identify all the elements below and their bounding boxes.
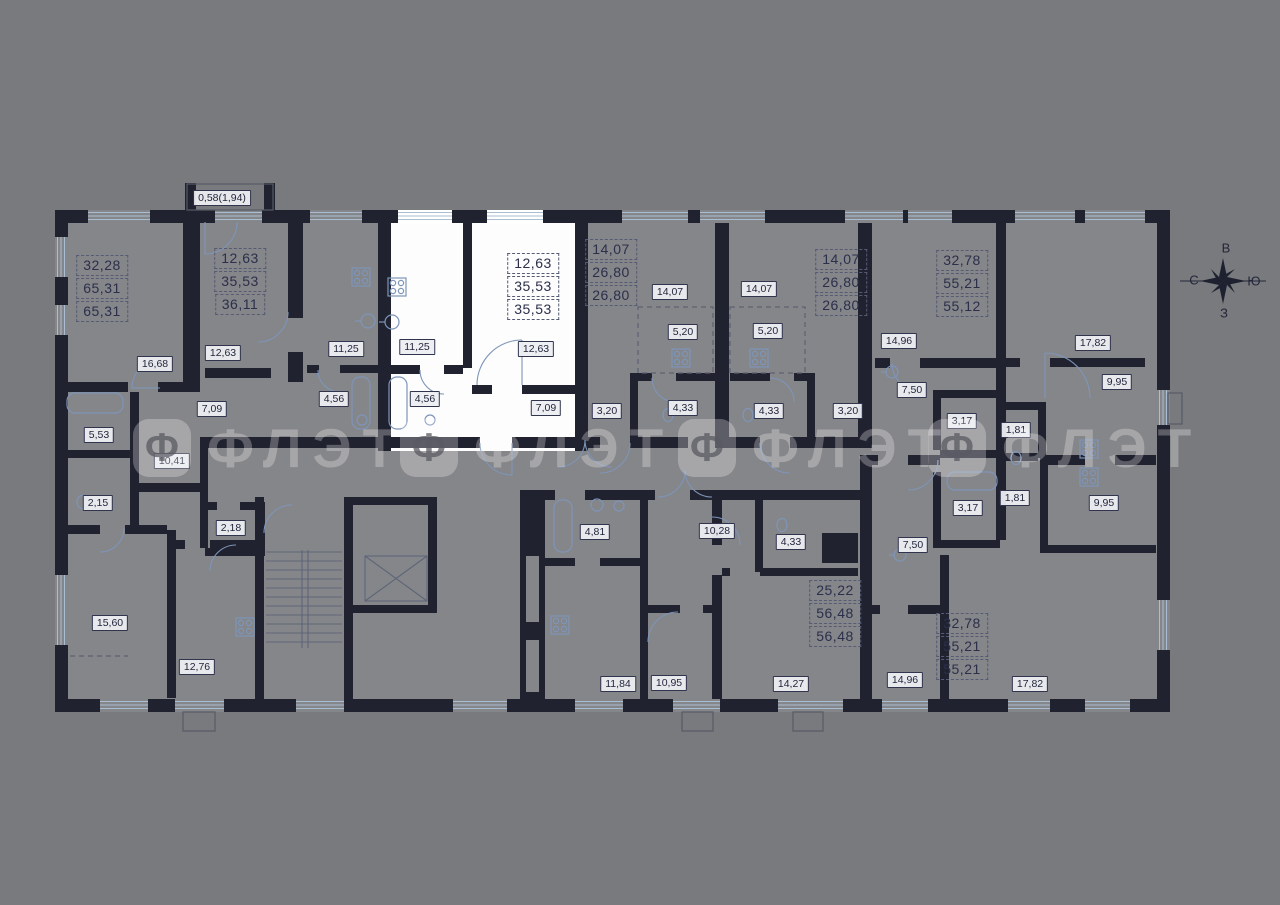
room-area-label: 4,56: [410, 391, 440, 407]
room-area-label: 2,15: [83, 495, 113, 511]
room-area-label: 14,96: [887, 672, 923, 688]
apartment-area-value: 36,11: [215, 294, 266, 315]
watermark-logo: ФФЛЭТ: [678, 419, 952, 477]
apartment-area-value: 32,78: [936, 613, 988, 634]
room-area-label: 14,07: [652, 284, 688, 300]
room-area-label: 4,81: [580, 524, 610, 540]
labels-layer: 0,58(1,94)16,6812,637,095,5311,254,5611,…: [0, 0, 1280, 905]
room-area-label: 7,09: [197, 401, 227, 417]
watermark-logo: ФФЛЭТ: [400, 419, 674, 477]
room-area-label: 7,50: [897, 382, 927, 398]
room-area-label: 7,09: [531, 400, 561, 416]
apartment-area-value: 25,22: [809, 580, 861, 601]
apartment-area-value: 12,63: [507, 253, 559, 274]
room-area-label: 14,27: [773, 676, 809, 692]
apartment-area-value: 65,31: [76, 278, 128, 299]
room-area-label: 11,84: [600, 676, 636, 692]
room-area-label: 5,20: [668, 324, 698, 340]
watermark-icon: Ф: [400, 419, 458, 477]
apartment-area-value: 35,53: [507, 299, 559, 320]
room-area-label: 2,18: [216, 520, 246, 536]
room-area-label: 0,58(1,94): [193, 190, 251, 206]
room-area-label: 3,20: [592, 403, 622, 419]
apartment-area-value: 55,21: [936, 659, 988, 680]
apartment-area-value: 56,48: [809, 626, 861, 647]
apartment-area-value: 32,78: [936, 250, 988, 271]
apartment-area-value: 14,07: [585, 239, 637, 260]
room-area-label: 15,60: [92, 615, 128, 631]
compass-rose: В С Ю З: [1178, 234, 1268, 329]
room-area-label: 11,25: [399, 339, 435, 355]
room-area-label: 3,20: [833, 403, 863, 419]
apartment-area-value: 12,63: [214, 248, 266, 269]
apartment-area-value: 55,12: [936, 296, 988, 317]
apartment-area-value: 35,53: [507, 276, 559, 297]
room-area-label: 1,81: [1001, 422, 1031, 438]
apartment-summary: 14,0726,8026,80: [815, 249, 867, 316]
room-area-label: 10,41: [154, 453, 190, 469]
compass-north-label: С: [1189, 273, 1198, 288]
room-area-label: 10,28: [699, 523, 735, 539]
room-area-label: 14,96: [881, 333, 917, 349]
room-area-label: 1,81: [1000, 490, 1030, 506]
apartment-summary: 32,7855,2155,21: [936, 613, 988, 680]
room-area-label: 10,95: [651, 675, 687, 691]
room-area-label: 11,25: [328, 341, 364, 357]
room-area-label: 9,95: [1102, 374, 1132, 390]
apartment-area-value: 26,80: [585, 285, 637, 306]
apartment-area-value: 65,31: [76, 301, 128, 322]
room-area-label: 12,76: [179, 659, 215, 675]
apartment-area-value: 26,80: [815, 295, 867, 316]
room-area-label: 5,20: [753, 323, 783, 339]
compass-south-label: Ю: [1247, 274, 1260, 289]
apartment-area-value: 14,07: [815, 249, 867, 270]
room-area-label: 12,63: [518, 341, 554, 357]
room-area-label: 4,33: [668, 400, 698, 416]
watermark-text: ФЛЭТ: [752, 419, 952, 477]
room-area-label: 4,56: [319, 391, 349, 407]
watermark-icon: Ф: [678, 419, 736, 477]
watermark-text: ФЛЭТ: [1002, 419, 1202, 477]
room-area-label: 3,17: [953, 500, 983, 516]
apartment-summary: 25,2256,4856,48: [809, 580, 861, 647]
room-area-label: 12,63: [205, 345, 241, 361]
watermark-text: ФЛЭТ: [207, 419, 407, 477]
apartment-summary: 32,7855,2155,12: [936, 250, 988, 317]
apartment-area-value: 55,21: [936, 273, 988, 294]
room-area-label: 3,17: [947, 413, 977, 429]
apartment-summary: 12,6335,5336,11: [214, 248, 266, 315]
room-area-label: 5,53: [84, 427, 114, 443]
room-area-label: 4,33: [754, 403, 784, 419]
room-area-label: 17,82: [1075, 335, 1111, 351]
apartment-summary: 32,2865,3165,31: [76, 255, 128, 322]
apartment-summary-highlighted: 12,6335,5335,53: [507, 253, 559, 320]
apartment-summary: 14,0726,8026,80: [585, 239, 637, 306]
room-area-label: 14,07: [741, 281, 777, 297]
room-area-label: 16,68: [137, 356, 173, 372]
room-area-label: 7,50: [898, 537, 928, 553]
room-area-label: 9,95: [1089, 495, 1119, 511]
apartment-area-value: 26,80: [585, 262, 637, 283]
apartment-area-value: 35,53: [214, 271, 266, 292]
apartment-area-value: 32,28: [76, 255, 128, 276]
watermark-text: ФЛЭТ: [474, 419, 674, 477]
room-area-label: 17,82: [1012, 676, 1048, 692]
apartment-area-value: 26,80: [815, 272, 867, 293]
compass-east-label: В: [1222, 241, 1231, 256]
floor-plan-canvas: 0,58(1,94)16,6812,637,095,5311,254,5611,…: [0, 0, 1280, 905]
apartment-area-value: 55,21: [936, 636, 988, 657]
compass-west-label: З: [1220, 306, 1228, 321]
room-area-label: 4,33: [776, 534, 806, 550]
apartment-area-value: 56,48: [809, 603, 861, 624]
